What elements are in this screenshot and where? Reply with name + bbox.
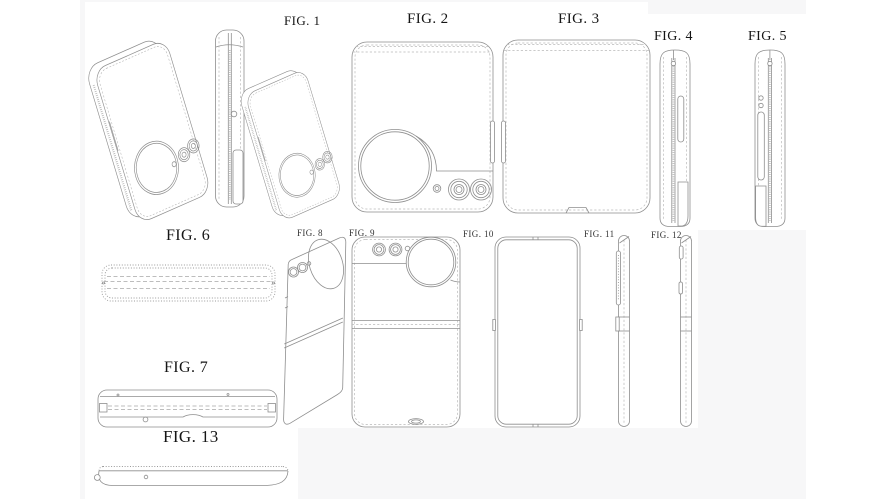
figure-label-fig7: FIG. 7 bbox=[164, 359, 208, 377]
figure-label-fig3: FIG. 3 bbox=[558, 11, 600, 28]
folded-phone-perspective-large bbox=[85, 33, 213, 227]
fig1-perspective-drawing bbox=[238, 64, 344, 224]
fig6-top-view-drawing bbox=[102, 265, 275, 301]
fig4-side-view-drawing bbox=[660, 50, 690, 227]
patent-drawings-artwork bbox=[0, 0, 887, 499]
fig9-unfolded-back-drawing bbox=[352, 237, 460, 427]
figure-label-fig2: FIG. 2 bbox=[407, 11, 449, 28]
fig5-side-view-drawing bbox=[755, 50, 785, 227]
figure-label-fig9: FIG. 9 bbox=[349, 228, 375, 238]
figure-label-fig11: FIG. 11 bbox=[584, 229, 614, 239]
figure-label-fig10: FIG. 10 bbox=[463, 229, 494, 239]
figure-label-fig12: FIG. 12 bbox=[651, 230, 682, 240]
folded-phone-side-view bbox=[216, 30, 245, 207]
figure-label-fig8: FIG. 8 bbox=[297, 228, 323, 238]
fig3-folded-back-drawing bbox=[502, 40, 651, 213]
patent-figures-page: FIG. 1 FIG. 2 FIG. 3 FIG. 4 FIG. 5 FIG. … bbox=[0, 0, 887, 499]
fig8-unfolded-perspective-drawing bbox=[284, 235, 350, 425]
fig13-edge-view-drawing bbox=[94, 467, 288, 486]
figure-label-fig1: FIG. 1 bbox=[284, 13, 320, 29]
figure-label-fig13: FIG. 13 bbox=[163, 427, 219, 447]
figure-label-fig5: FIG. 5 bbox=[748, 29, 787, 45]
fig2-folded-front-drawing bbox=[352, 42, 495, 212]
fig11-unfolded-side-drawing bbox=[616, 236, 630, 427]
fig12-unfolded-side-drawing bbox=[679, 236, 692, 427]
figure-label-fig6: FIG. 6 bbox=[166, 227, 210, 245]
figure-label-fig4: FIG. 4 bbox=[654, 29, 693, 45]
fig10-unfolded-front-drawing bbox=[493, 237, 582, 427]
fig7-bottom-view-drawing bbox=[98, 390, 277, 427]
